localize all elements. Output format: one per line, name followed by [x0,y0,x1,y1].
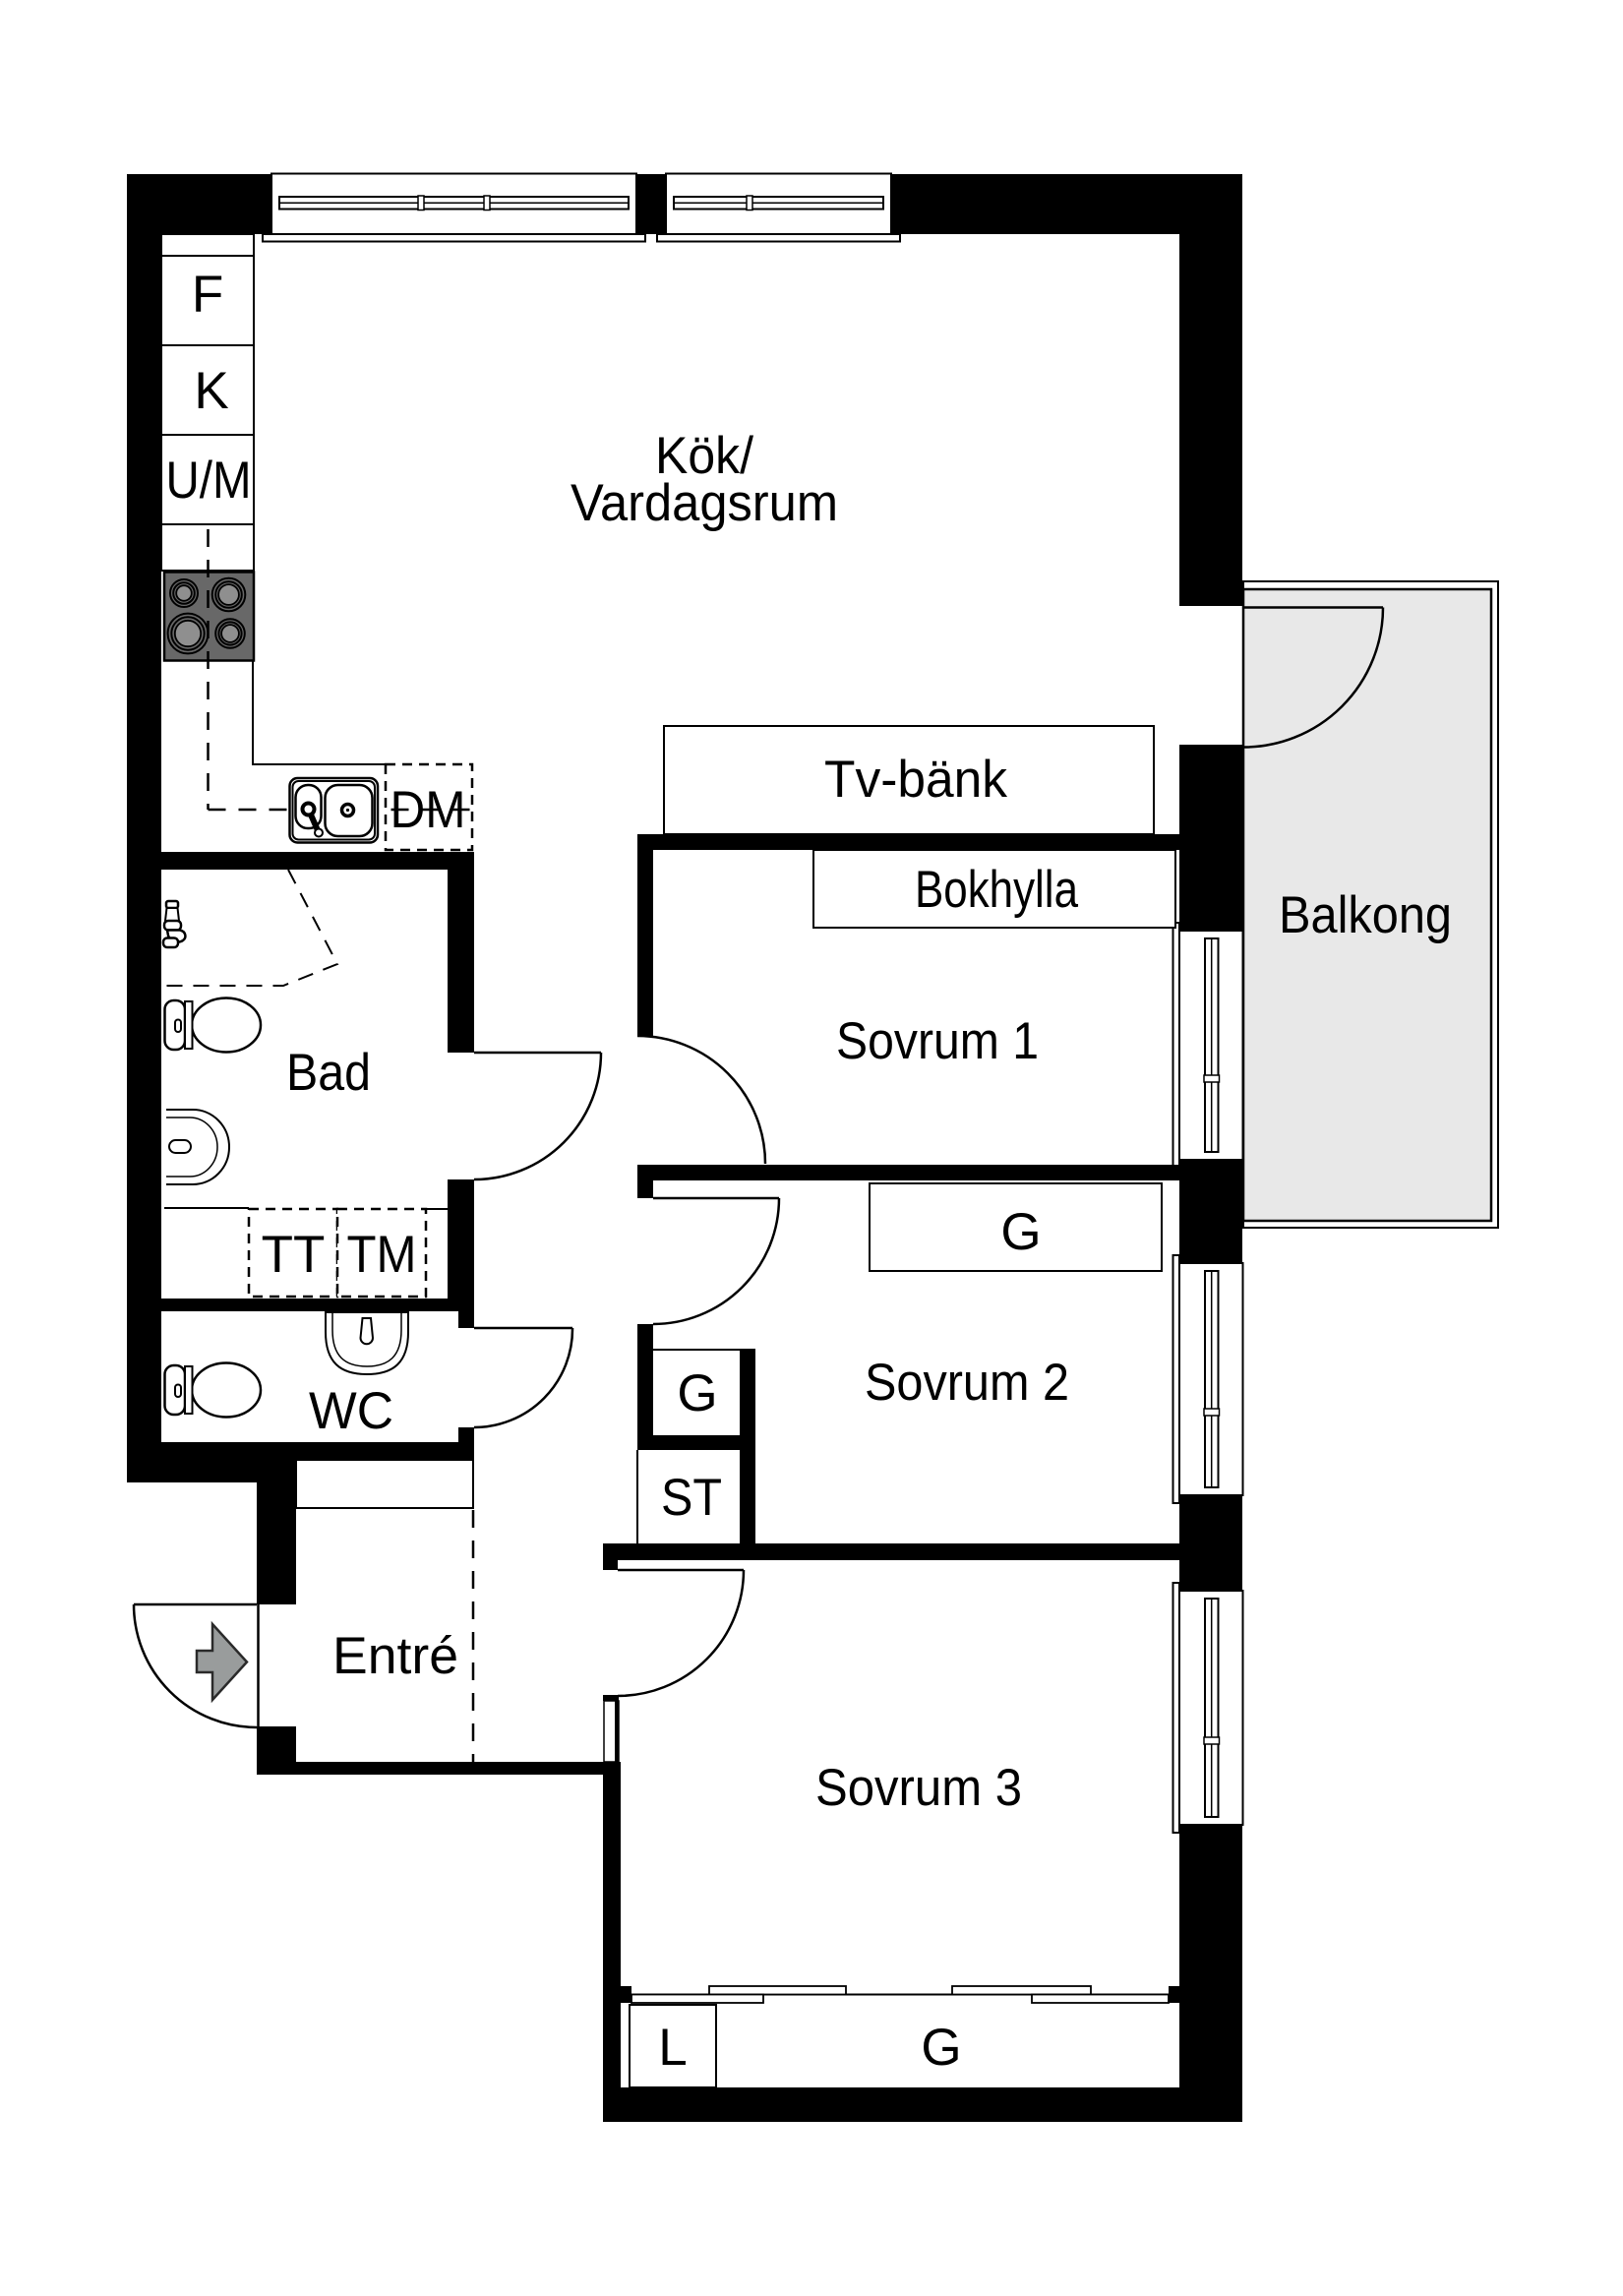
svg-text:Sovrum 2: Sovrum 2 [865,1354,1069,1412]
svg-text:F: F [192,266,223,324]
svg-text:Bokhylla: Bokhylla [915,861,1078,919]
svg-text:U/M: U/M [166,452,252,510]
svg-text:G: G [1000,1203,1041,1261]
svg-text:G: G [677,1364,717,1422]
svg-text:TT: TT [262,1226,326,1284]
svg-text:Entré: Entré [332,1627,458,1685]
svg-text:L: L [658,2019,687,2077]
svg-text:Sovrum 3: Sovrum 3 [815,1759,1022,1817]
svg-text:K: K [194,362,228,420]
svg-text:G: G [921,2019,961,2077]
svg-text:WC: WC [309,1382,393,1440]
svg-text:ST: ST [661,1469,722,1527]
svg-text:TM: TM [347,1226,417,1284]
svg-text:Bad: Bad [286,1044,371,1102]
svg-text:Balkong: Balkong [1279,886,1452,944]
svg-text:Sovrum 1: Sovrum 1 [836,1012,1039,1070]
svg-text:DM: DM [391,781,466,839]
svg-text:Tv-bänk: Tv-bänk [824,751,1007,809]
svg-text:Vardagsrum: Vardagsrum [571,474,838,532]
